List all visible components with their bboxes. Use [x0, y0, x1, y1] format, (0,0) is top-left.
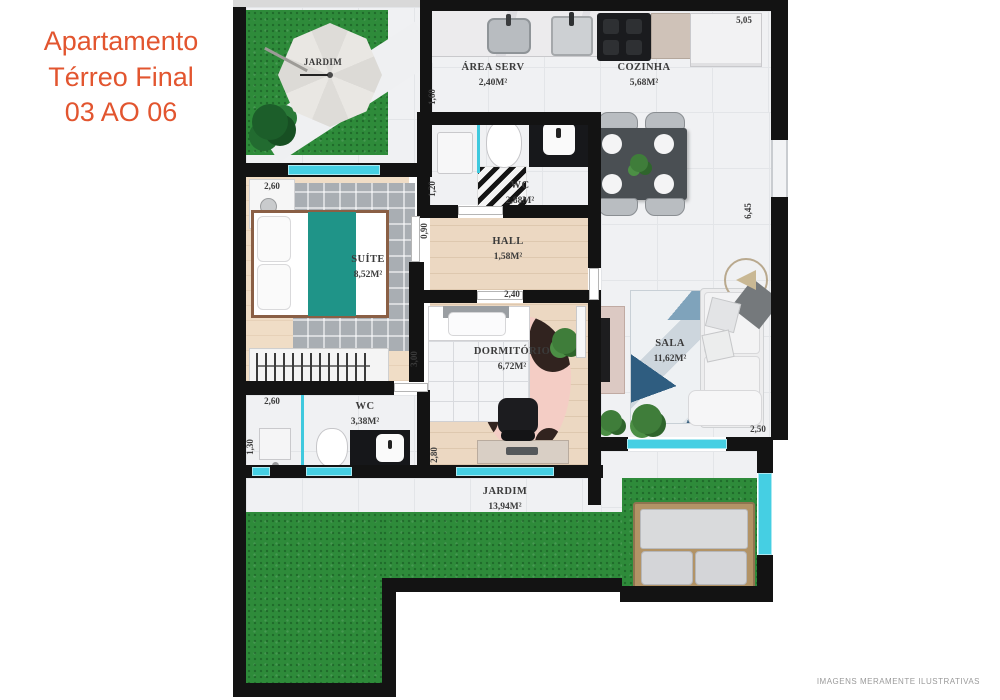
wall-segment [382, 578, 622, 592]
measurement-wc-suite-left: 1,20 [427, 171, 437, 207]
garden-bench-cushion [695, 551, 747, 585]
measurement-dorm-top: 2,40 [488, 289, 536, 299]
room-label-wc-social: WC 3,38M² [328, 399, 402, 430]
wall-shelf [576, 306, 586, 358]
dining-chair [598, 198, 638, 216]
room-name: JARDIM [452, 484, 558, 500]
wall-segment [588, 112, 601, 268]
room-name: JARDIM [295, 56, 351, 70]
room-name: WC [482, 178, 558, 194]
dining-centerpiece-plant [630, 154, 648, 172]
room-name: DORMITÓRIO [460, 344, 564, 360]
wall-segment [420, 0, 788, 11]
plan-title-line3: 03 AO 06 [18, 95, 224, 131]
vanity-faucet-social [388, 440, 392, 449]
room-name: WC [328, 399, 402, 415]
wall-segment [620, 586, 773, 602]
grass-bottom-left [246, 512, 382, 683]
sala-plant-small [600, 410, 622, 432]
measurement-suite-head: 2,60 [252, 181, 292, 191]
tv [601, 318, 610, 382]
measurement-sala-bottom: 2,50 [736, 424, 780, 434]
garden-bench-backrest [640, 509, 748, 549]
wall-segment [757, 437, 773, 473]
sofa-chaise-cushion [688, 390, 762, 426]
vanity-faucet-suite [556, 128, 561, 138]
room-area: 1,58M² [468, 250, 548, 265]
door-hall-sala [589, 268, 599, 300]
washing-machine [437, 132, 473, 174]
window [771, 140, 788, 197]
measurement-wc-social-top: 2,60 [252, 396, 292, 406]
room-label-cozinha: COZINHA 5,68M² [588, 60, 700, 91]
room-name: SALA [628, 336, 712, 352]
room-label-dormitorio: DORMITÓRIO 6,72M² [460, 344, 564, 375]
wall-segment [233, 0, 423, 7]
room-area: 2,40M² [437, 76, 549, 91]
measurement-area-serv-left: 1,60 [427, 79, 437, 115]
wall-segment [420, 290, 477, 303]
garden-bush [252, 104, 288, 140]
room-area: 5,68M² [588, 76, 700, 91]
office-chair-back [501, 430, 535, 441]
measurement-right-wall: 6,45 [743, 193, 753, 229]
shower-glass-panel-2 [301, 395, 304, 465]
cooktop-burner [603, 19, 619, 34]
cooktop-burner [626, 19, 642, 34]
room-area: 3,38M² [328, 415, 402, 430]
room-label-jardim-bottom: JARDIM 13,94M² [452, 484, 558, 515]
label-leader-line [300, 74, 328, 76]
sala-plant [632, 404, 662, 434]
room-label-wc-suite: WC 2,88M² [482, 178, 558, 209]
suite-pillow [257, 264, 291, 310]
door-wc-social [394, 383, 428, 392]
room-label-jardim-top: JARDIM [295, 56, 351, 70]
measurement-suite-right: 3,00 [409, 341, 419, 377]
room-name: COZINHA [588, 60, 700, 76]
room-area: 2,88M² [482, 194, 558, 209]
plan-title-line2: Térreo Final [18, 60, 224, 96]
sliding-door [627, 439, 727, 449]
wall-segment [233, 381, 394, 395]
measurement-kitchen-top: 5,05 [722, 15, 766, 25]
wall-segment [420, 112, 600, 125]
dining-plate [602, 134, 622, 154]
room-area: 11,62M² [628, 352, 712, 367]
laundry-sink-faucet [506, 14, 511, 26]
cooktop-burner [626, 40, 642, 55]
suite-pillow [257, 216, 291, 262]
plan-title-line1: Apartamento [18, 24, 224, 60]
sliding-door [456, 467, 554, 476]
disclaimer-text: IMAGENS MERAMENTE ILUSTRATIVAS [640, 677, 992, 686]
dining-chair [645, 198, 685, 216]
measurement-wc-social-left: 1,30 [245, 431, 255, 463]
dining-plate [602, 174, 622, 194]
room-label-suite: SUÍTE 8,52M² [326, 252, 410, 283]
office-chair [498, 398, 538, 434]
shower-tray [259, 428, 291, 460]
toilet-social [316, 428, 348, 468]
dining-plate [654, 174, 674, 194]
wall-segment [771, 197, 788, 440]
wall-segment [771, 0, 788, 140]
dining-plate [654, 134, 674, 154]
wall-segment [588, 437, 628, 451]
garden-bench-cushion [641, 551, 693, 585]
suite-wardrobe-hangers [256, 353, 370, 381]
room-label-hall: HALL 1,58M² [468, 234, 548, 265]
grass-bottom-center [382, 512, 622, 578]
window [758, 473, 772, 555]
room-name: SUÍTE [326, 252, 410, 268]
window [306, 467, 352, 476]
measurement-hall-left: 0,90 [419, 213, 429, 249]
room-name: ÁREA SERV [437, 60, 549, 76]
room-label-sala: SALA 11,62M² [628, 336, 712, 367]
measurement-dorm-left: 2,80 [429, 437, 439, 473]
wall-segment [233, 0, 246, 697]
wall-segment [233, 683, 396, 697]
window [288, 165, 380, 175]
laundry-tank-faucet [569, 12, 574, 26]
room-name: HALL [468, 234, 548, 250]
desk-keyboard [506, 447, 538, 455]
room-area: 6,72M² [460, 360, 564, 375]
room-area: 8,52M² [326, 268, 410, 283]
single-bed-pillow [448, 312, 506, 336]
toilet-suite [486, 120, 522, 168]
wall-segment [382, 578, 396, 697]
plan-title: Apartamento Térreo Final 03 AO 06 [18, 24, 224, 131]
room-area: 13,94M² [452, 500, 558, 515]
window [252, 467, 270, 476]
cooktop-burner [603, 40, 619, 55]
room-label-area-serv: ÁREA SERV 2,40M² [437, 60, 549, 91]
